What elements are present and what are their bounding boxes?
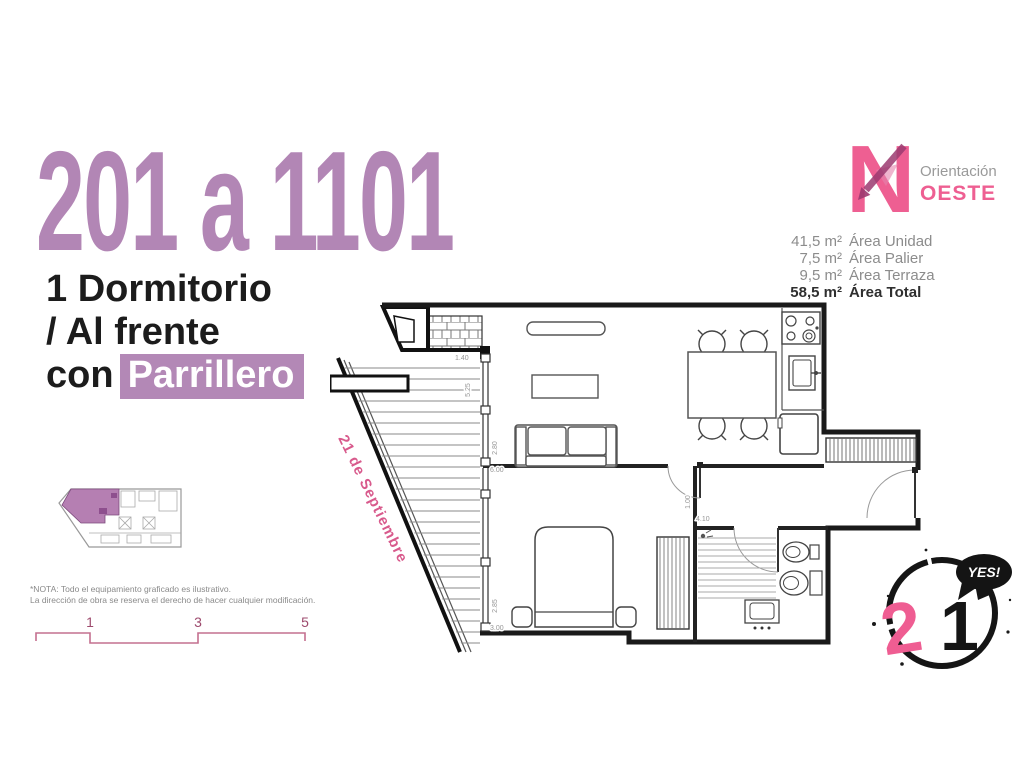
key-plan — [55, 481, 195, 578]
dim-terrace-length: 5.25 — [465, 383, 472, 397]
orientation-block: Orientación OESTE — [920, 163, 997, 206]
dining-table — [688, 352, 776, 418]
scale-bar-line — [36, 633, 305, 643]
dim-living-width: 2.80 — [492, 441, 499, 455]
note-line-2: La dirección de obra se reserva el derec… — [30, 595, 315, 606]
area-value: 9,5 m² — [782, 267, 842, 284]
area-row-palier: 7,5 m² Área Palier — [782, 250, 982, 267]
bathroom-vanity — [745, 600, 779, 630]
dim-bedroom-width: 2.85 — [492, 599, 499, 613]
dim-living-length: 6.00 — [490, 467, 504, 474]
note-line-1: *NOTA: Todo el equipamiento graficado es… — [30, 584, 315, 595]
shower-head-icon — [701, 530, 713, 538]
logo-bubble-text: YES! — [968, 564, 1001, 580]
subtitle-line-3: conParrillero — [46, 354, 304, 397]
orientation-label: Orientación — [920, 163, 997, 180]
nightstand-right — [616, 607, 636, 627]
entry-door — [867, 467, 918, 518]
scale-label-1: 1 — [86, 614, 94, 630]
dim-terrace-width: 1.40 — [455, 355, 469, 362]
tv-console — [527, 322, 605, 335]
scale-label-3: 3 — [194, 614, 202, 630]
kitchen-sink — [789, 356, 821, 390]
disclaimer-note: *NOTA: Todo el equipamiento graficado es… — [30, 584, 315, 606]
parrillero-badge: Parrillero — [120, 354, 305, 399]
shower-area — [698, 538, 776, 598]
area-row-unidad: 41,5 m² Área Unidad — [782, 233, 982, 250]
area-label: Área Unidad — [849, 233, 982, 250]
subtitle-line-2: / Al frente — [46, 311, 304, 354]
street-label: 21 de Septiembre — [334, 432, 411, 565]
brand-logo: 1 2 YES! — [860, 538, 1018, 676]
nightstand-left — [512, 607, 532, 627]
dining-set — [688, 330, 776, 440]
subtitle-line-1: 1 Dormitorio — [46, 268, 304, 311]
bedroom — [512, 527, 689, 629]
stove — [782, 312, 820, 344]
toilet — [780, 571, 822, 595]
coffee-table — [532, 375, 598, 398]
kitchen — [778, 308, 824, 454]
flyer-page: 201 a 1101 1 Dormitorio / Al frente conP… — [0, 0, 1024, 768]
area-label: Área Palier — [849, 250, 982, 267]
logo-number-pink: 2 — [875, 586, 927, 671]
bedroom-door — [668, 462, 703, 498]
key-plan-unit-detail — [111, 493, 117, 498]
area-label: Área Terraza — [849, 267, 982, 284]
dim-hall-length: 4.10 — [696, 516, 710, 523]
unit-range-title: 201 a 1101 — [36, 131, 453, 273]
facade-ledge — [330, 376, 408, 391]
wardrobe — [657, 537, 689, 629]
area-row-terraza: 9,5 m² Área Terraza — [782, 267, 982, 284]
subtitle-prefix: con — [46, 354, 114, 396]
palier-hatch — [826, 438, 916, 462]
parrillero-brick — [383, 307, 490, 359]
fridge — [778, 414, 818, 454]
windows — [481, 354, 490, 631]
terrace-deck — [330, 368, 482, 643]
scale-bar: 1 3 5 — [30, 612, 315, 652]
area-value: 7,5 m² — [782, 250, 842, 267]
unit-description: 1 Dormitorio / Al frente conParrillero — [46, 268, 304, 397]
scale-label-5: 5 — [301, 614, 309, 630]
dim-door-width: 1.00 — [685, 495, 692, 509]
dim-bedroom-length: 3.00 — [490, 625, 504, 632]
north-compass-icon: N — [842, 120, 920, 220]
sofa — [515, 425, 617, 467]
bidet — [783, 542, 819, 562]
street-edge — [338, 358, 471, 652]
key-plan-unit-detail — [99, 508, 107, 514]
orientation-value: OESTE — [920, 182, 997, 206]
area-value: 41,5 m² — [782, 233, 842, 250]
floor-plan: 21 de Septiembre — [330, 290, 930, 668]
bathroom — [698, 530, 822, 630]
